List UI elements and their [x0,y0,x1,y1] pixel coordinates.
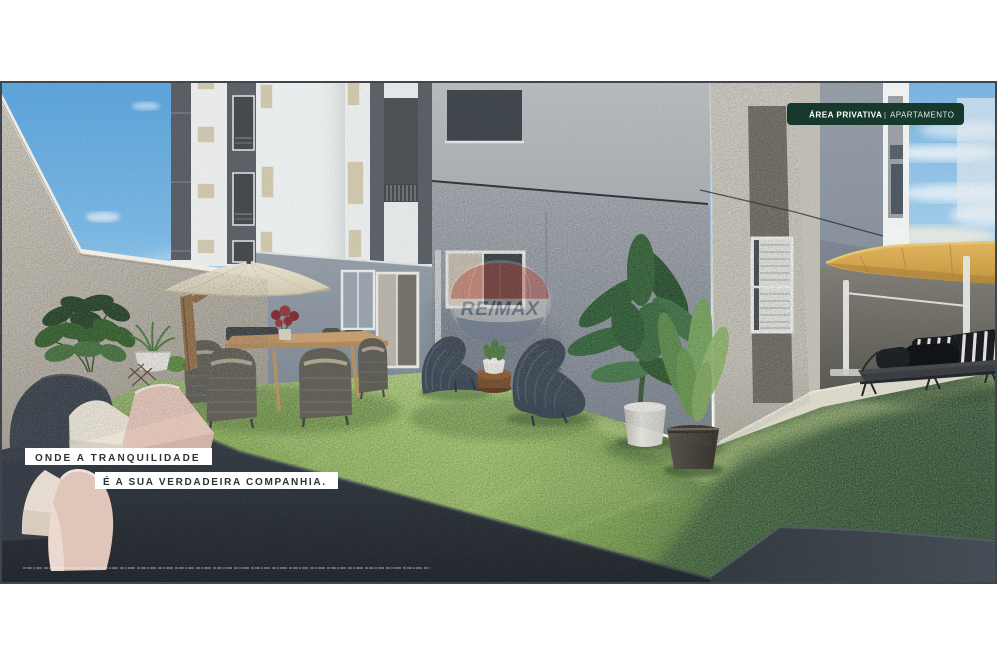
svg-text:ÁREA PRIVATIVA: ÁREA PRIVATIVA [809,110,882,120]
svg-text:ONDE A TRANQUILIDADE: ONDE A TRANQUILIDADE [35,453,201,464]
svg-text:|: | [884,111,886,120]
svg-text:APARTAMENTO: APARTAMENTO [890,111,954,120]
svg-text:É A SUA VERDADEIRA COMPANHIA.: É A SUA VERDADEIRA COMPANHIA. [103,475,327,488]
svg-text:RE/MAX: RE/MAX [461,298,540,320]
